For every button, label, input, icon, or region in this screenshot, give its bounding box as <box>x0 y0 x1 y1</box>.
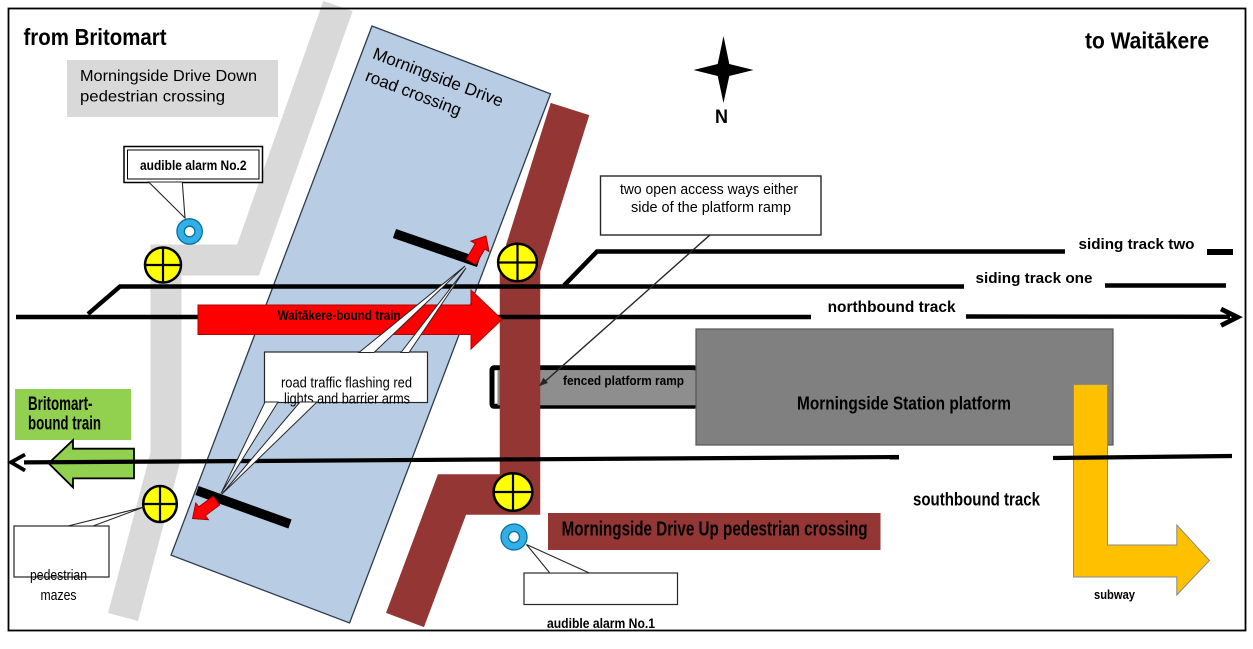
svg-text:Morningside Drive Down: Morningside Drive Down <box>80 68 257 85</box>
svg-text:northbound track: northbound track <box>828 299 956 316</box>
svg-text:side of the platform ramp: side of the platform ramp <box>631 199 791 216</box>
svg-text:Morningside Drive Up pedestria: Morningside Drive Up pedestrian crossing <box>562 519 868 541</box>
svg-text:audible alarm No.2: audible alarm No.2 <box>140 157 247 173</box>
svg-text:mazes: mazes <box>41 588 77 604</box>
svg-text:to Waitākere: to Waitākere <box>1085 28 1209 54</box>
svg-text:bound train: bound train <box>28 414 101 435</box>
svg-text:subway: subway <box>1094 587 1136 602</box>
svg-text:pedestrian crossing: pedestrian crossing <box>80 89 225 106</box>
svg-text:Morningside Station platform: Morningside Station platform <box>797 393 1011 414</box>
svg-text:audible alarm No.1: audible alarm No.1 <box>547 616 655 631</box>
svg-text:two open access ways either: two open access ways either <box>620 181 798 198</box>
svg-text:siding track one: siding track one <box>976 271 1093 287</box>
svg-text:pedestrian: pedestrian <box>30 568 87 584</box>
svg-text:road traffic flashing red: road traffic flashing red <box>281 376 412 392</box>
svg-text:fenced platform ramp: fenced platform ramp <box>563 373 684 388</box>
svg-text:Britomart-: Britomart- <box>28 394 93 415</box>
svg-text:Waitākere-bound train: Waitākere-bound train <box>278 307 401 323</box>
svg-text:from Britomart: from Britomart <box>24 24 167 50</box>
svg-text:N: N <box>715 107 728 128</box>
svg-text:southbound track: southbound track <box>913 489 1041 510</box>
svg-text:siding track two: siding track two <box>1079 237 1195 253</box>
